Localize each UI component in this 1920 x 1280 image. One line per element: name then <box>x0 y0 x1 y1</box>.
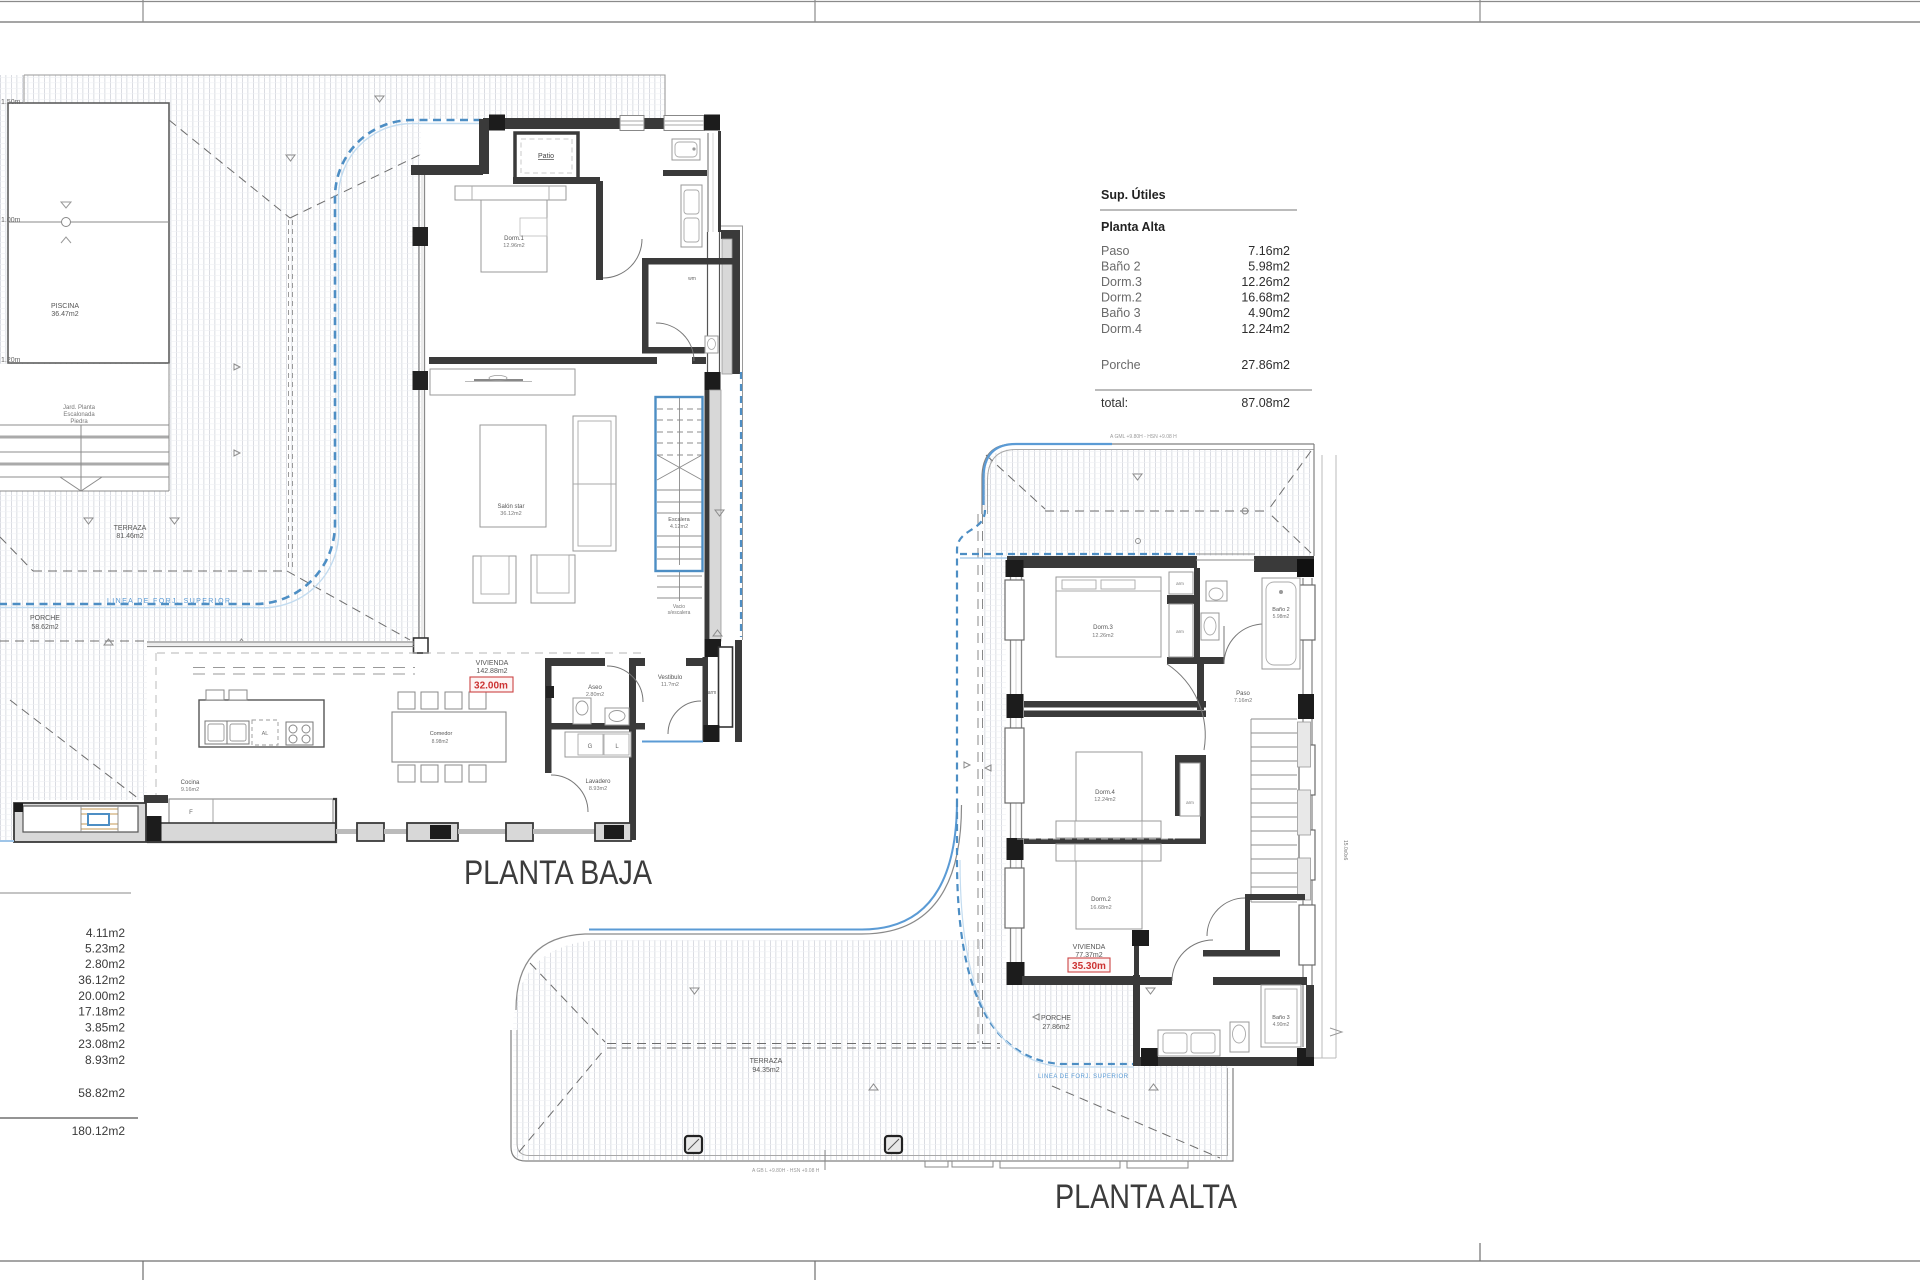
svg-text:16.68m2: 16.68m2 <box>1090 905 1111 911</box>
svg-text:35.30m: 35.30m <box>1072 961 1106 972</box>
svg-text:94.35m2: 94.35m2 <box>752 1067 779 1074</box>
svg-text:17.18m2: 17.18m2 <box>78 1005 125 1019</box>
svg-text:AL: AL <box>262 731 269 737</box>
svg-text:Dorm.3: Dorm.3 <box>1101 275 1142 289</box>
svg-text:arm: arm <box>1176 629 1184 634</box>
svg-text:wm: wm <box>688 276 696 282</box>
svg-text:Aseo: Aseo <box>588 685 602 691</box>
svg-text:4.11m2: 4.11m2 <box>86 926 125 940</box>
svg-text:11.?m2: 11.?m2 <box>661 682 679 688</box>
svg-text:12.96m2: 12.96m2 <box>503 243 524 249</box>
svg-text:23.08m2: 23.08m2 <box>78 1037 125 1051</box>
svg-text:180.12m2: 180.12m2 <box>72 1124 126 1138</box>
svg-text:Baño 2: Baño 2 <box>1101 260 1141 274</box>
svg-text:27.86m2: 27.86m2 <box>1241 358 1290 372</box>
svg-text:PORCHE: PORCHE <box>30 615 60 622</box>
svg-text:7.16m2: 7.16m2 <box>1248 244 1290 258</box>
svg-text:5.98m2: 5.98m2 <box>1273 614 1290 620</box>
svg-text:Paso: Paso <box>1101 244 1130 258</box>
svg-text:PISCINA: PISCINA <box>51 303 79 310</box>
svg-text:36.12m2: 36.12m2 <box>500 511 521 517</box>
svg-text:5.23m2: 5.23m2 <box>85 942 125 956</box>
svg-text:4.90m2: 4.90m2 <box>1273 1022 1290 1028</box>
svg-text:81.46m2: 81.46m2 <box>116 533 143 540</box>
svg-text:87.08m2: 87.08m2 <box>1241 396 1290 410</box>
svg-text:Patio: Patio <box>538 153 554 160</box>
svg-text:Jard. Planta: Jard. Planta <box>63 405 96 411</box>
svg-text:Porche: Porche <box>1101 358 1141 372</box>
svg-text:16.68m2: 16.68m2 <box>1241 291 1290 305</box>
svg-text:12.24m2: 12.24m2 <box>1094 797 1115 803</box>
svg-text:Planta Alta: Planta Alta <box>1101 220 1166 234</box>
svg-text:8.93m2: 8.93m2 <box>85 1053 125 1067</box>
svg-text:PORCHE: PORCHE <box>1041 1015 1071 1022</box>
svg-text:Baño 2: Baño 2 <box>1272 607 1289 613</box>
svg-text:Dorm.2: Dorm.2 <box>1101 291 1142 305</box>
svg-text:LINEA DE FORJ. SUPERIOR: LINEA DE FORJ. SUPERIOR <box>1038 1074 1129 1080</box>
svg-text:TERRAZA: TERRAZA <box>750 1058 783 1065</box>
svg-text:PLANTA BAJA: PLANTA BAJA <box>464 854 652 892</box>
svg-text:3.85m2: 3.85m2 <box>85 1021 125 1035</box>
svg-text:20.00m2: 20.00m2 <box>78 989 125 1003</box>
svg-text:A GML +9.80H - HSN +9.08 H: A GML +9.80H - HSN +9.08 H <box>1110 434 1177 440</box>
svg-text:4.12m2: 4.12m2 <box>670 524 688 530</box>
svg-text:15.0x0x6: 15.0x0x6 <box>1342 840 1348 861</box>
svg-text:Lavadero: Lavadero <box>585 779 611 785</box>
svg-text:2.80m2: 2.80m2 <box>85 957 125 971</box>
svg-text:58.62m2: 58.62m2 <box>31 624 58 631</box>
svg-text:Baño 3: Baño 3 <box>1272 1015 1289 1021</box>
svg-text:4.90m2: 4.90m2 <box>1248 306 1290 320</box>
svg-text:Sup. Útiles: Sup. Útiles <box>1101 187 1166 202</box>
svg-text:Escalonada: Escalonada <box>63 412 95 418</box>
svg-text:s/escalera: s/escalera <box>668 610 691 616</box>
svg-text:arm: arm <box>708 690 717 696</box>
svg-text:Baño 3: Baño 3 <box>1101 306 1141 320</box>
svg-text:58.82m2: 58.82m2 <box>78 1086 125 1100</box>
svg-text:1.00m: 1.00m <box>1 217 21 224</box>
svg-text:142.88m2: 142.88m2 <box>476 668 507 675</box>
svg-text:LINEA DE FORJ. SUPERIOR: LINEA DE FORJ. SUPERIOR <box>107 598 231 605</box>
svg-text:12.26m2: 12.26m2 <box>1092 633 1113 639</box>
svg-text:1.50m: 1.50m <box>1 99 21 106</box>
svg-text:32.00m: 32.00m <box>474 681 508 692</box>
svg-text:Dorm.1: Dorm.1 <box>504 236 524 242</box>
svg-text:8.93m2: 8.93m2 <box>589 786 607 792</box>
svg-text:Dorm.3: Dorm.3 <box>1093 625 1113 631</box>
svg-text:Paso: Paso <box>1236 691 1250 697</box>
svg-text:G: G <box>588 744 593 750</box>
svg-text:2.80m2: 2.80m2 <box>586 692 604 698</box>
svg-text:VIVIENDA: VIVIENDA <box>1073 944 1106 951</box>
svg-text:total:: total: <box>1101 396 1128 410</box>
svg-text:Dorm.4: Dorm.4 <box>1095 790 1115 796</box>
svg-text:36.12m2: 36.12m2 <box>78 973 125 987</box>
svg-text:A GB L +9.80H - HSN +9.08 H: A GB L +9.80H - HSN +9.08 H <box>752 1168 820 1174</box>
svg-text:Dorm.4: Dorm.4 <box>1101 322 1142 336</box>
svg-text:27.86m2: 27.86m2 <box>1042 1024 1069 1031</box>
svg-text:9.16m2: 9.16m2 <box>181 787 199 793</box>
svg-text:TERRAZA: TERRAZA <box>114 525 147 532</box>
svg-text:5.98m2: 5.98m2 <box>1248 260 1290 274</box>
svg-text:12.24m2: 12.24m2 <box>1241 322 1290 336</box>
svg-text:PLANTA ALTA: PLANTA ALTA <box>1055 1178 1237 1216</box>
svg-text:arm: arm <box>1186 800 1194 805</box>
svg-text:7.16m2: 7.16m2 <box>1234 698 1252 704</box>
svg-text:36.47m2: 36.47m2 <box>51 311 78 318</box>
svg-text:1.20m: 1.20m <box>1 357 21 364</box>
svg-text:arm: arm <box>1176 581 1184 586</box>
svg-text:Dorm.2: Dorm.2 <box>1091 897 1111 903</box>
svg-text:Piedra: Piedra <box>70 419 88 425</box>
svg-text:Comedor: Comedor <box>430 731 453 737</box>
svg-text:8.98m2: 8.98m2 <box>432 739 449 745</box>
svg-text:VIVIENDA: VIVIENDA <box>476 660 509 667</box>
svg-text:Escalera: Escalera <box>668 517 690 523</box>
svg-text:Cocina: Cocina <box>181 780 200 786</box>
svg-text:Salón star: Salón star <box>497 504 524 510</box>
svg-text:Vestibulo: Vestibulo <box>658 675 683 681</box>
svg-text:F: F <box>189 810 193 816</box>
svg-text:12.26m2: 12.26m2 <box>1241 275 1290 289</box>
